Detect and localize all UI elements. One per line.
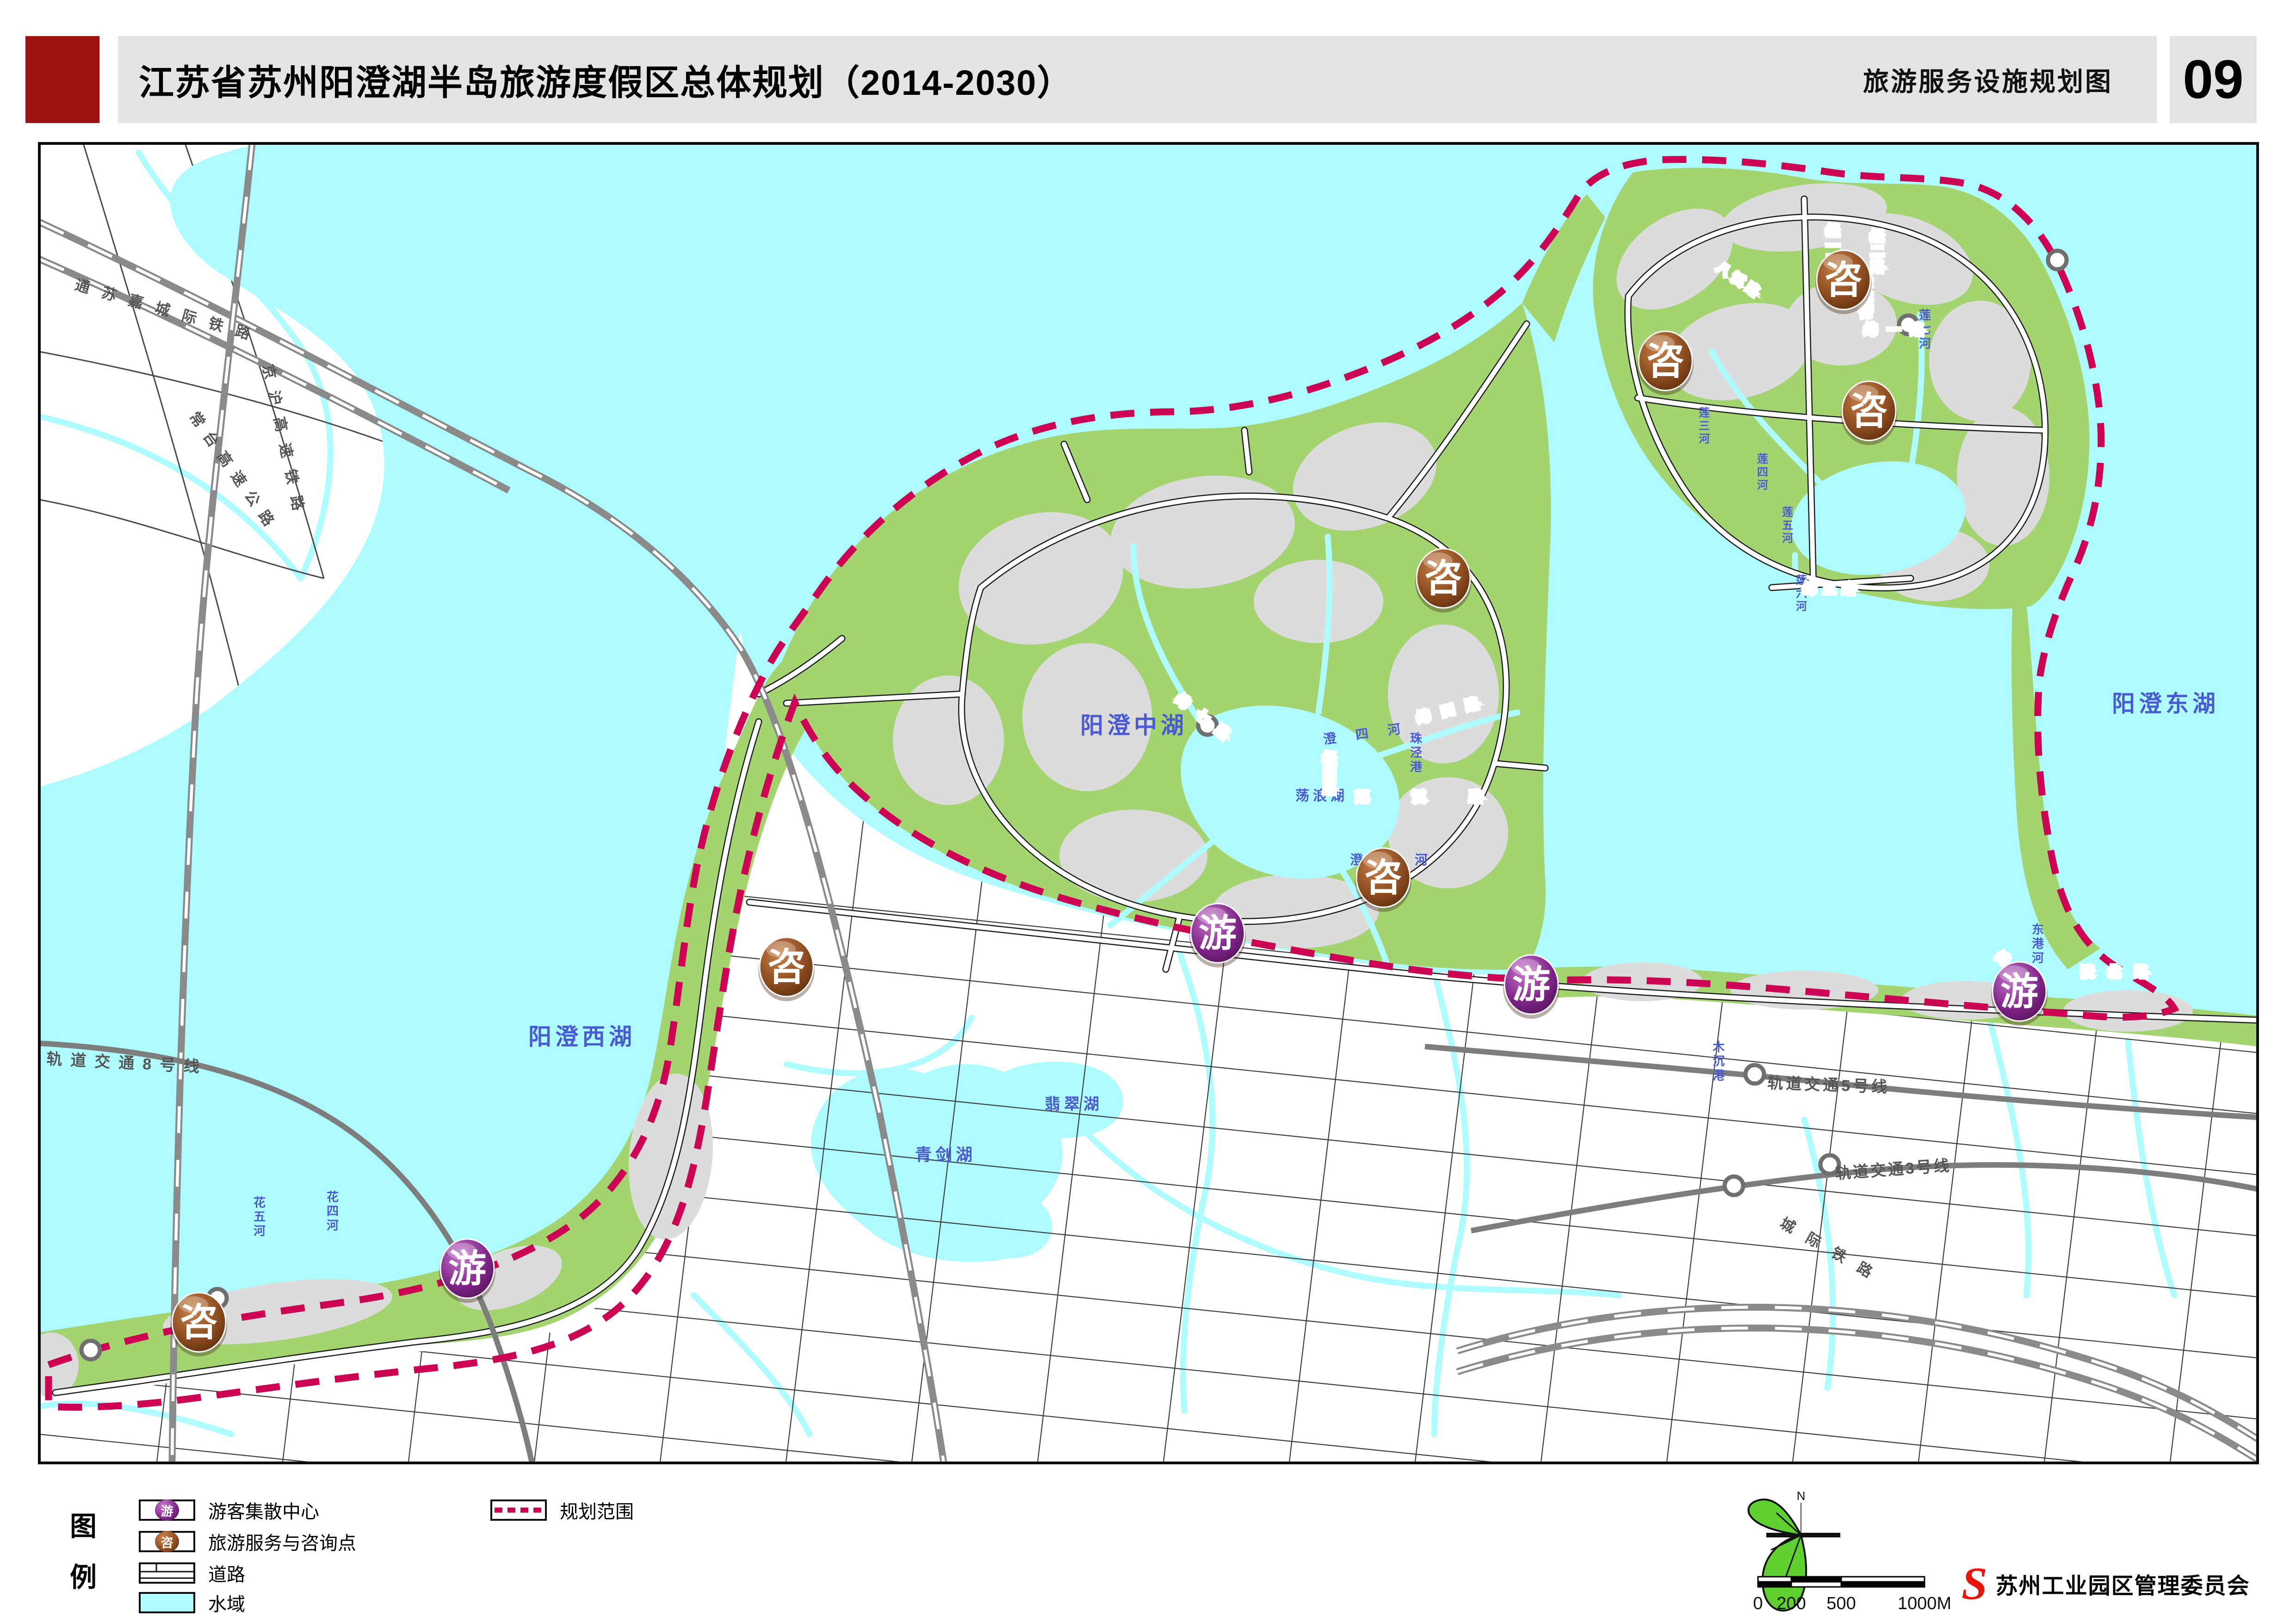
map-label: 阳澄中湖 (1080, 712, 1188, 738)
footer-attribution: S 苏州工业园区管理委员会 (1962, 1567, 2250, 1600)
scalebar-label: 1000M (1898, 1594, 1951, 1613)
marker-glyph: 咨 (180, 1301, 218, 1344)
map-label: 莲五河 (1782, 506, 1793, 545)
metro-station-icon (1745, 1065, 1764, 1084)
tourism-info-marker[interactable]: 咨 (1355, 848, 1411, 912)
map-canvas[interactable]: 阳澄中湖阳澄西湖阳澄东湖翡翠湖青剑湖荡浪湖木沉港东港河莲七河莲三河莲四河莲五河莲… (0, 0, 2296, 1623)
tourism-info-marker[interactable]: 咨 (1815, 250, 1872, 314)
legend-label: 规划范围 (560, 1497, 634, 1524)
map-content: 阳澄中湖阳澄西湖阳澄东湖翡翠湖青剑湖荡浪湖木沉港东港河莲七河莲三河莲四河莲五河莲… (12, 143, 2296, 1623)
tourism-info-marker[interactable]: 咨 (1415, 549, 1472, 613)
legend-item-hub: 游游客集散中心 (139, 1497, 319, 1524)
map-label: 莲四河 (1757, 453, 1768, 492)
legend-item-info: 咨旅游服务与咨询点 (139, 1528, 356, 1555)
marker-glyph: 游 (448, 1248, 486, 1290)
legend-label: 旅游服务与咨询点 (208, 1528, 356, 1555)
tourist-center-marker[interactable]: 游 (439, 1239, 495, 1303)
metro-station-icon (81, 1341, 100, 1359)
map-label: 通溪路 (1355, 790, 1526, 804)
map-label: 经二路 (1871, 229, 1884, 274)
tourist-center-marker[interactable]: 游 (1503, 955, 1560, 1019)
marker-glyph: 咨 (1424, 558, 1462, 600)
marker-glyph: 咨 (1364, 857, 1402, 899)
legend-label: 水域 (208, 1589, 245, 1616)
tourism-info-marker[interactable]: 咨 (758, 937, 815, 1001)
legend-symbol-hub: 游 (139, 1499, 195, 1521)
tourism-info-marker[interactable]: 咨 (171, 1293, 227, 1357)
map-label: 纬三路 (1803, 582, 1862, 596)
metro-station-icon (1725, 1177, 1743, 1195)
map-label: 莲三河 (1699, 407, 1710, 446)
scalebar-label: 0 (1753, 1594, 1763, 1613)
map-label: 东港河 (2032, 923, 2044, 965)
north-arrow: N (1748, 1489, 1840, 1611)
north-label: N (1797, 1489, 1806, 1503)
scalebar-label: 500 (1826, 1594, 1856, 1613)
map-label: 翡翠湖 (1045, 1096, 1103, 1113)
map-label: 花四河 (327, 1190, 339, 1232)
marker-glyph: 咨 (767, 946, 805, 988)
planning-map-page: 江苏省苏州阳澄湖半岛旅游度假区总体规划（2014-2030） 旅游服务设施规划图… (0, 0, 2296, 1623)
map-label: 青剑湖 (915, 1145, 976, 1164)
tourism-info-marker[interactable]: 咨 (1841, 381, 1897, 445)
tourist-center-marker[interactable]: 游 (1189, 904, 1246, 967)
marker-glyph: 游 (2000, 971, 2038, 1013)
map-label: 陵北路 (2081, 965, 2161, 979)
map-label: 木沉港 (1712, 1040, 1725, 1082)
map-label: 珠泾港 (1410, 731, 1423, 774)
road-symbol-icon (139, 1562, 195, 1584)
legend-item-boundary: 规划范围 (490, 1497, 634, 1524)
tourist-center-marker[interactable]: 游 (1991, 962, 2048, 1026)
legend-item-road: 道路 (139, 1560, 245, 1586)
marker-glyph: 咨 (1850, 390, 1888, 432)
legend-label: 道路 (208, 1560, 245, 1586)
scale-bar: 02005001000M (1753, 1577, 1951, 1613)
scalebar-label: 200 (1776, 1594, 1806, 1613)
marker-glyph: 咨 (1646, 340, 1684, 382)
map-label: 阳澄西湖 (528, 1024, 636, 1050)
marker-glyph: 游 (1199, 912, 1237, 954)
boundary-symbol-icon (490, 1499, 547, 1521)
metro-station-icon (2048, 251, 2067, 269)
tourism-info-marker[interactable]: 咨 (1637, 331, 1694, 395)
map-label: 经四路 (1323, 751, 1336, 796)
map-label: 阳澄东湖 (2112, 691, 2219, 717)
water-symbol-icon (139, 1592, 195, 1613)
attribution-text: 苏州工业园区管理委员会 (1996, 1567, 2250, 1600)
legend-item-water: 水域 (139, 1589, 245, 1616)
marker-glyph: 咨 (1825, 259, 1863, 301)
legend-symbol-info: 咨 (139, 1531, 195, 1552)
map-label: 荡浪湖 (1295, 788, 1348, 804)
legend-title: 图 例 (67, 1501, 99, 1603)
tourist-center-icon: 游 (155, 1499, 179, 1521)
map-label: 花五河 (254, 1196, 266, 1238)
map-label: 纬一路 (1864, 322, 1934, 337)
legend-label: 游客集散中心 (208, 1497, 319, 1524)
marker-glyph: 游 (1512, 964, 1550, 1006)
tourism-info-icon: 咨 (155, 1531, 179, 1552)
legend: 图 例 游游客集散中心咨旅游服务与咨询点道路水域规划范围 (56, 1492, 749, 1612)
sip-logo-icon: S (1962, 1570, 1987, 1598)
